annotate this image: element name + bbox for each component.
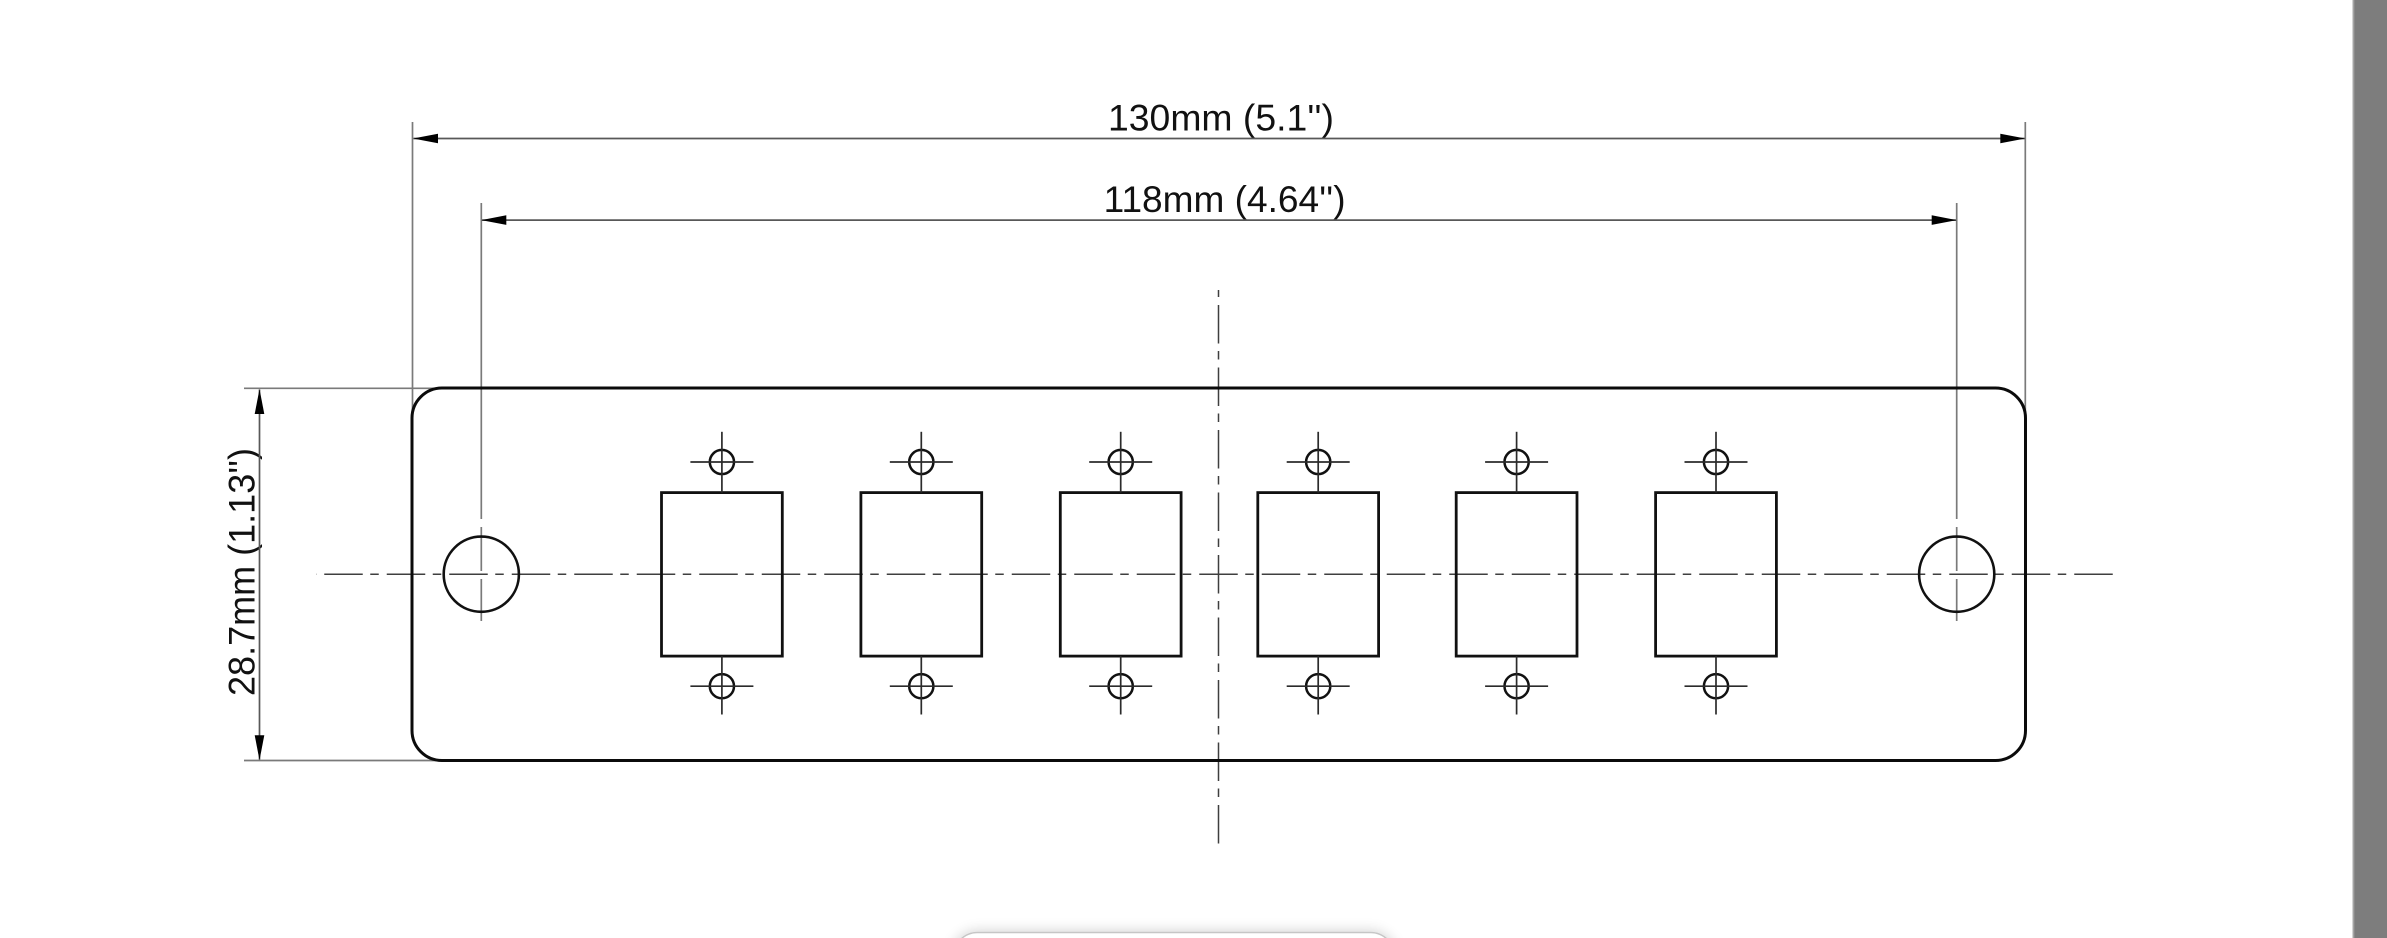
svg-text:28.7mm (1.13''): 28.7mm (1.13''): [221, 448, 263, 696]
svg-text:130mm (5.1''): 130mm (5.1''): [1108, 97, 1334, 139]
svg-text:118mm (4.64''): 118mm (4.64''): [1104, 178, 1346, 220]
